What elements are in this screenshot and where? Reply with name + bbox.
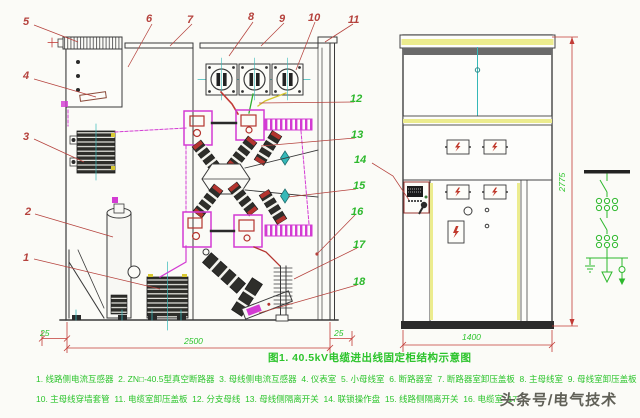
callout-1: 1	[23, 253, 29, 264]
callout-15: 15	[353, 181, 365, 192]
left-section-view	[48, 37, 338, 330]
busbar-room-cover-plate	[200, 43, 318, 48]
cabinet-base	[401, 321, 554, 329]
line-side-disconnector	[183, 182, 312, 247]
figure-caption: 图1. 40.5kV电缆进出线固定柜结构示意图	[268, 353, 471, 364]
small-busbar-compartment	[58, 37, 122, 49]
breaker-room-cover-plate	[125, 43, 193, 48]
earthing-symbol	[585, 258, 595, 272]
single-line-diagram	[584, 170, 630, 284]
callout-3: 3	[23, 132, 29, 143]
cable-arrow	[602, 272, 612, 282]
bus-side-disconnector	[184, 110, 312, 174]
callout-17: 17	[353, 240, 365, 251]
bus-side-current-transformer	[70, 124, 115, 180]
callout-2: 2	[25, 207, 31, 218]
dim-cabinet-depth: 2500	[184, 337, 203, 346]
legend-line-2: 10. 主母线穿墙套管 11. 电缆室卸压盖板 12. 分支母线 13. 母线侧…	[36, 395, 520, 404]
callout-9: 9	[279, 14, 285, 25]
callout-18: 18	[353, 277, 365, 288]
callout-16: 16	[351, 207, 363, 218]
callout-7: 7	[187, 15, 193, 26]
callout-12: 12	[350, 94, 362, 105]
callout-4: 4	[23, 71, 29, 82]
legend-line-1: 1. 线路侧电流互感器 2. ZN□-40.5型真空断路器 3. 母线侧电流互感…	[36, 375, 637, 384]
door-warning-label	[448, 221, 464, 243]
callout-11: 11	[348, 15, 359, 26]
wall-bushings	[198, 58, 310, 100]
callout-13: 13	[351, 130, 363, 141]
dim-cabinet-height: 2775	[558, 173, 567, 192]
dim-right-margin: 25	[334, 329, 343, 338]
vacuum-circuit-breaker	[69, 197, 140, 318]
dim-cabinet-width: 1400	[462, 333, 481, 342]
callout-10: 10	[308, 13, 320, 24]
callout-14: 14	[354, 155, 366, 166]
figure-page: 1 2 3 4 5 6 7 8 9 10 11 12 13 14 15 16 1…	[0, 0, 640, 418]
dim-left-margin: 25	[40, 329, 49, 338]
plug-contact-upper	[596, 198, 617, 210]
watermark: 头条号/电气技术	[499, 393, 617, 408]
plug-contact-lower	[596, 235, 617, 247]
callout-8: 8	[248, 12, 254, 23]
front-view	[400, 35, 555, 329]
callout-6: 6	[146, 14, 152, 25]
callout-5: 5	[23, 17, 29, 28]
